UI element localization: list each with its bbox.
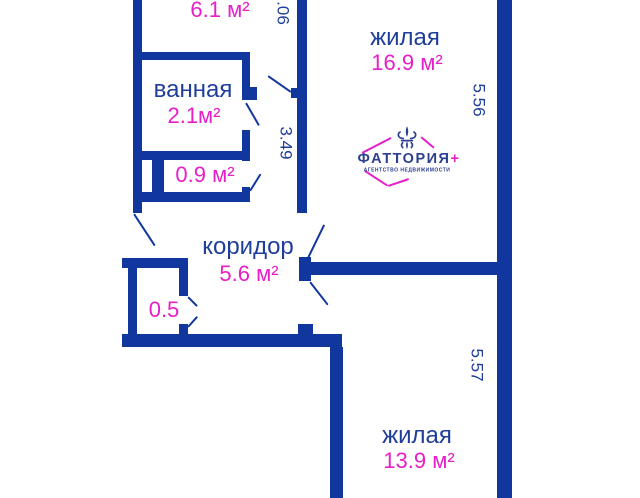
dimension-3-49: 3.49 <box>278 126 295 159</box>
bathroom-area-label: 2.1м² <box>167 105 220 127</box>
logo-bracket-top-right <box>420 136 434 148</box>
dimension-5-56: 5.56 <box>471 83 488 116</box>
wall-storeroom-top <box>142 151 250 160</box>
wall-middle-vertical <box>297 0 307 213</box>
wall-divider-horizontal <box>300 262 512 275</box>
living-bottom-name-label: жилая <box>382 424 452 448</box>
door-tick-closet-upper <box>187 296 198 307</box>
wall-left-outer <box>133 0 142 213</box>
logo-bracket-bottom <box>388 178 410 187</box>
corridor-area-label: 5.6 м² <box>219 263 278 285</box>
wall-shaft-divider <box>152 160 164 193</box>
wall-jamb-bathroom <box>250 87 257 100</box>
wall-bathroom-right <box>242 52 250 100</box>
wall-jamb-middle <box>291 88 297 98</box>
dimension-top-partial: .06 <box>275 1 292 25</box>
door-swing-bathroom <box>245 103 260 127</box>
wall-right-outer <box>497 0 512 498</box>
storeroom-area-label: 0.9 м² <box>175 164 234 186</box>
door-swing-storeroom <box>249 174 261 192</box>
living-top-name-label: жилая <box>370 26 440 50</box>
wall-bathroom-top <box>133 52 250 60</box>
door-swing-living-top <box>307 224 325 258</box>
wall-bottomroom-left <box>330 347 343 498</box>
closet-area-label: 0.5 <box>149 299 180 321</box>
logo-wordmark: ФАТТОРИЯ+ <box>358 152 461 167</box>
door-tick-closet-lower <box>187 316 198 327</box>
corridor-name-label: коридор <box>202 235 294 259</box>
living-top-area-label: 16.9 м² <box>371 52 442 74</box>
dimension-5-57: 5.57 <box>469 348 486 381</box>
door-swing-living-bottom <box>309 281 328 305</box>
wall-corridor-bottom <box>122 334 342 347</box>
living-bottom-area-label: 13.9 м² <box>383 450 454 472</box>
door-swing-entry <box>133 213 156 246</box>
wall-closet-right-lower <box>179 324 188 346</box>
room61-area-label: 6.1 м² <box>190 0 249 21</box>
logo-brand-text: ФАТТОРИЯ <box>358 151 451 167</box>
door-swing-room61 <box>267 75 291 93</box>
wall-closet-right-upper <box>179 258 188 296</box>
wall-storeroom-bottom <box>133 192 250 202</box>
logo-tagline: АГЕНТСТВО НЕДВИЖИМОСТИ <box>364 169 451 174</box>
floor-plan: 6.1 м² ванная 2.1м² 0.9 м² коридор 5.6 м… <box>0 0 640 498</box>
bathroom-name-label: ванная <box>154 78 233 102</box>
logo-plus: + <box>450 151 460 167</box>
wall-closet-left <box>128 258 137 346</box>
